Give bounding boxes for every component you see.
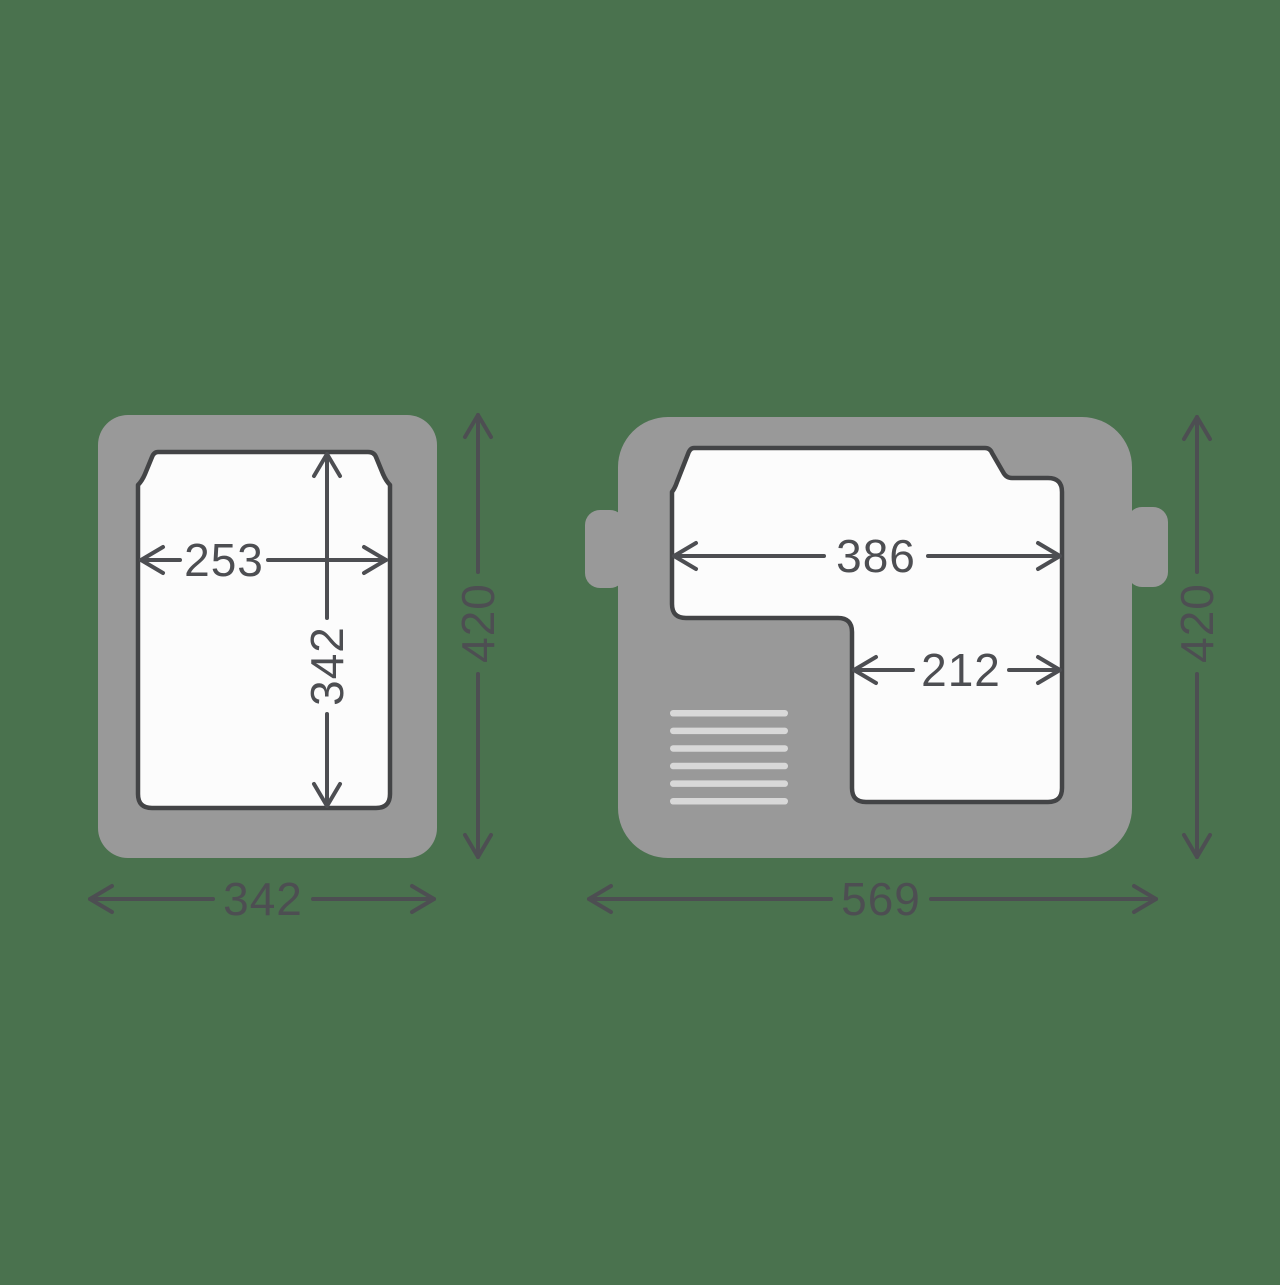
cooler-dimension-diagram: 253 342 420 342 bbox=[0, 0, 1280, 1280]
top-view: 386 212 420 569 bbox=[585, 417, 1223, 925]
dim-front-outer-width: 342 bbox=[90, 873, 434, 925]
dim-front-inner-height-label: 342 bbox=[301, 626, 353, 706]
dim-top-outer-height-label: 420 bbox=[1171, 583, 1223, 663]
dim-front-inner-width-label: 253 bbox=[184, 534, 264, 586]
vent-slot bbox=[670, 763, 788, 770]
vent-slot bbox=[670, 798, 788, 805]
latch-tab-right bbox=[1127, 507, 1168, 587]
vent-slot bbox=[670, 780, 788, 787]
vent-slot bbox=[670, 710, 788, 717]
dim-front-outer-height: 420 bbox=[452, 415, 504, 857]
dim-top-outer-height: 420 bbox=[1171, 417, 1223, 857]
dim-top-inner-width-label: 386 bbox=[836, 530, 916, 582]
dim-front-outer-width-label: 342 bbox=[223, 873, 303, 925]
dimension-diagram-page: 253 342 420 342 bbox=[0, 0, 1280, 1280]
dim-top-inner-lower-width-label: 212 bbox=[921, 644, 1001, 696]
front-view: 253 342 420 342 bbox=[90, 415, 504, 925]
dim-front-outer-height-label: 420 bbox=[452, 583, 504, 663]
dim-top-outer-width-label: 569 bbox=[841, 873, 921, 925]
vent-slot bbox=[670, 728, 788, 735]
dim-top-outer-width: 569 bbox=[589, 873, 1156, 925]
vent-slot bbox=[670, 745, 788, 752]
